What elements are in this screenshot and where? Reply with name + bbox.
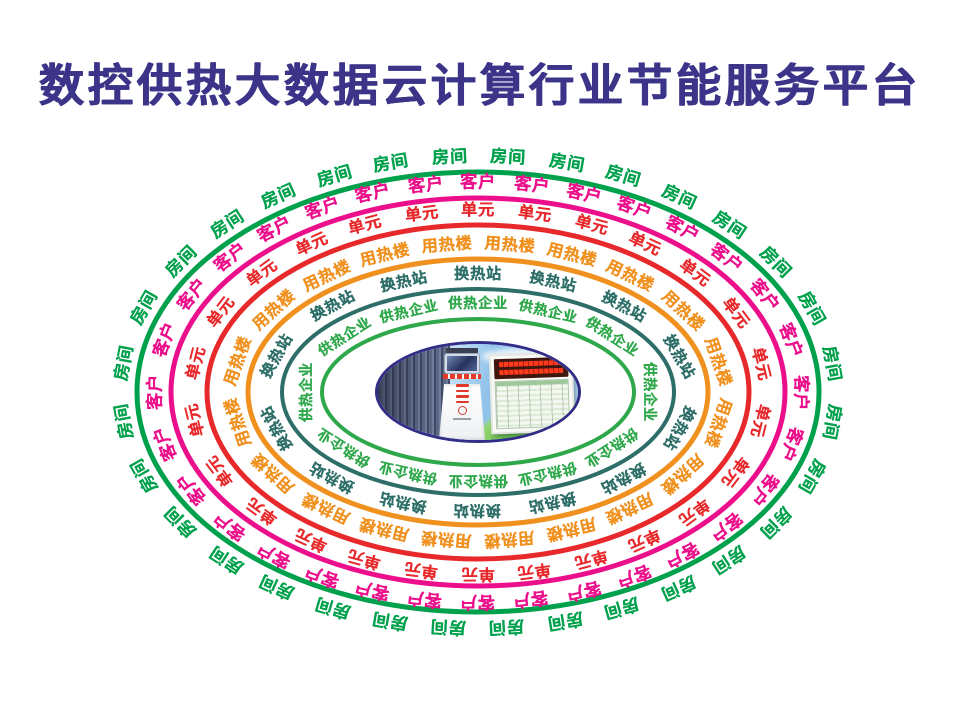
ring-heating-enterprise-label: 供热企业 [448, 473, 508, 487]
ring-unit-label: 单元 [461, 202, 495, 218]
ring-room-label: 房间 [370, 608, 408, 631]
kiosk-screen [445, 354, 479, 373]
ring-customer-label: 客户 [513, 175, 551, 196]
ring-room-label: 房间 [546, 609, 584, 632]
kiosk-terminal [438, 348, 486, 438]
ring-customer-label: 客户 [460, 175, 496, 192]
led-display [494, 357, 569, 380]
ring-customer-label: 客户 [791, 375, 808, 411]
ring-unit-label: 单元 [404, 203, 440, 223]
ring-heating-building-label: 用热楼 [484, 235, 536, 255]
kiosk-red-band [443, 374, 481, 379]
led-text-line [499, 368, 563, 375]
ring-customer-label: 客户 [459, 592, 495, 609]
ring-heating-building-label: 用热楼 [483, 529, 535, 549]
ring-customer-label: 客户 [512, 588, 550, 609]
ring-room-label: 房间 [489, 148, 526, 167]
kiosk-text-line [456, 390, 469, 393]
ring-room-label: 房间 [488, 617, 525, 636]
ring-unit-label: 单元 [517, 204, 553, 224]
ring-customer-label: 客户 [407, 175, 445, 196]
ring-customer-label: 客户 [405, 588, 443, 609]
ring-customer-label: 客户 [148, 374, 165, 410]
poster-slide: 数控供热大数据云计算行业节能服务平台 房间房间房间房间房间房间房间房间房间房间房… [0, 0, 960, 720]
kiosk-seal-icon [458, 406, 467, 415]
ring-unit-label: 单元 [461, 566, 495, 582]
kiosk-body [439, 384, 485, 440]
kiosk-text-line [456, 384, 469, 387]
ring-heating-enterprise-label: 供热企业 [642, 362, 656, 422]
ring-heat-exchange-station-label: 换热站 [453, 502, 501, 517]
led-text-line [499, 360, 563, 367]
kiosk-text-line [456, 395, 469, 398]
ring-heat-exchange-station-label: 换热站 [454, 267, 502, 282]
center-photo [375, 341, 581, 443]
kiosk-header-strip [446, 348, 478, 353]
kiosk-text-line [456, 401, 469, 404]
ring-room-label: 房间 [431, 148, 468, 167]
ring-room-label: 房间 [430, 617, 467, 636]
ring-heating-enterprise-label: 供热企业 [448, 297, 508, 311]
ring-heating-enterprise-label: 供热企业 [300, 362, 314, 422]
data-table [495, 379, 571, 430]
kiosk-footer-line [453, 418, 471, 420]
ring-unit-label: 单元 [403, 560, 439, 580]
monitoring-board [489, 352, 576, 435]
ring-heating-building-label: 用热楼 [420, 529, 472, 549]
ring-heating-building-label: 用热楼 [421, 235, 473, 255]
ring-unit-label: 单元 [516, 560, 552, 580]
